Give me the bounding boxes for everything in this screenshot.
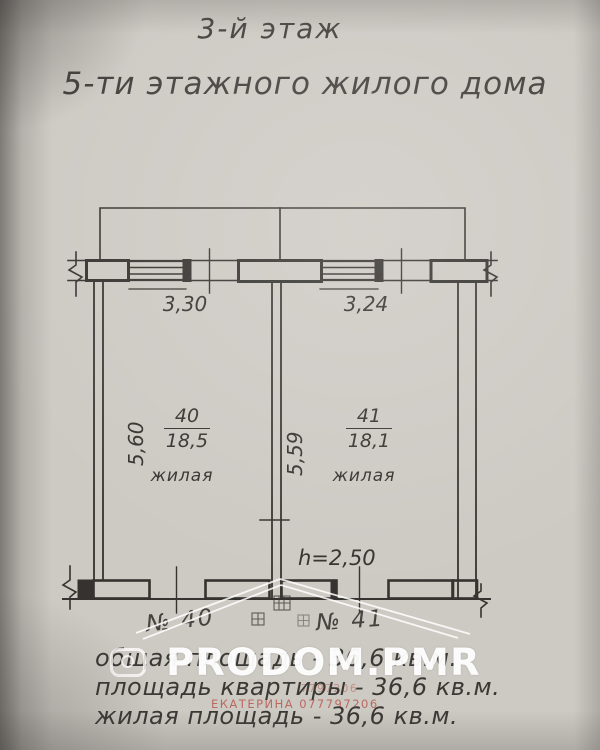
watermark-roof-lines <box>0 0 600 750</box>
watermark-camera-icon <box>110 648 146 677</box>
watermark-camera-lens <box>121 655 134 668</box>
roof-line-right-1 <box>280 579 470 634</box>
roof-line-left-1 <box>136 579 280 633</box>
roof-line-right-2 <box>281 585 458 638</box>
watermark-brand-text: PRODOM.PMR <box>166 641 481 684</box>
roof-line-left-2 <box>143 585 281 639</box>
scanned-floor-plan-page: 3-й этаж 5-ти этажного жилого дома <box>0 0 600 750</box>
